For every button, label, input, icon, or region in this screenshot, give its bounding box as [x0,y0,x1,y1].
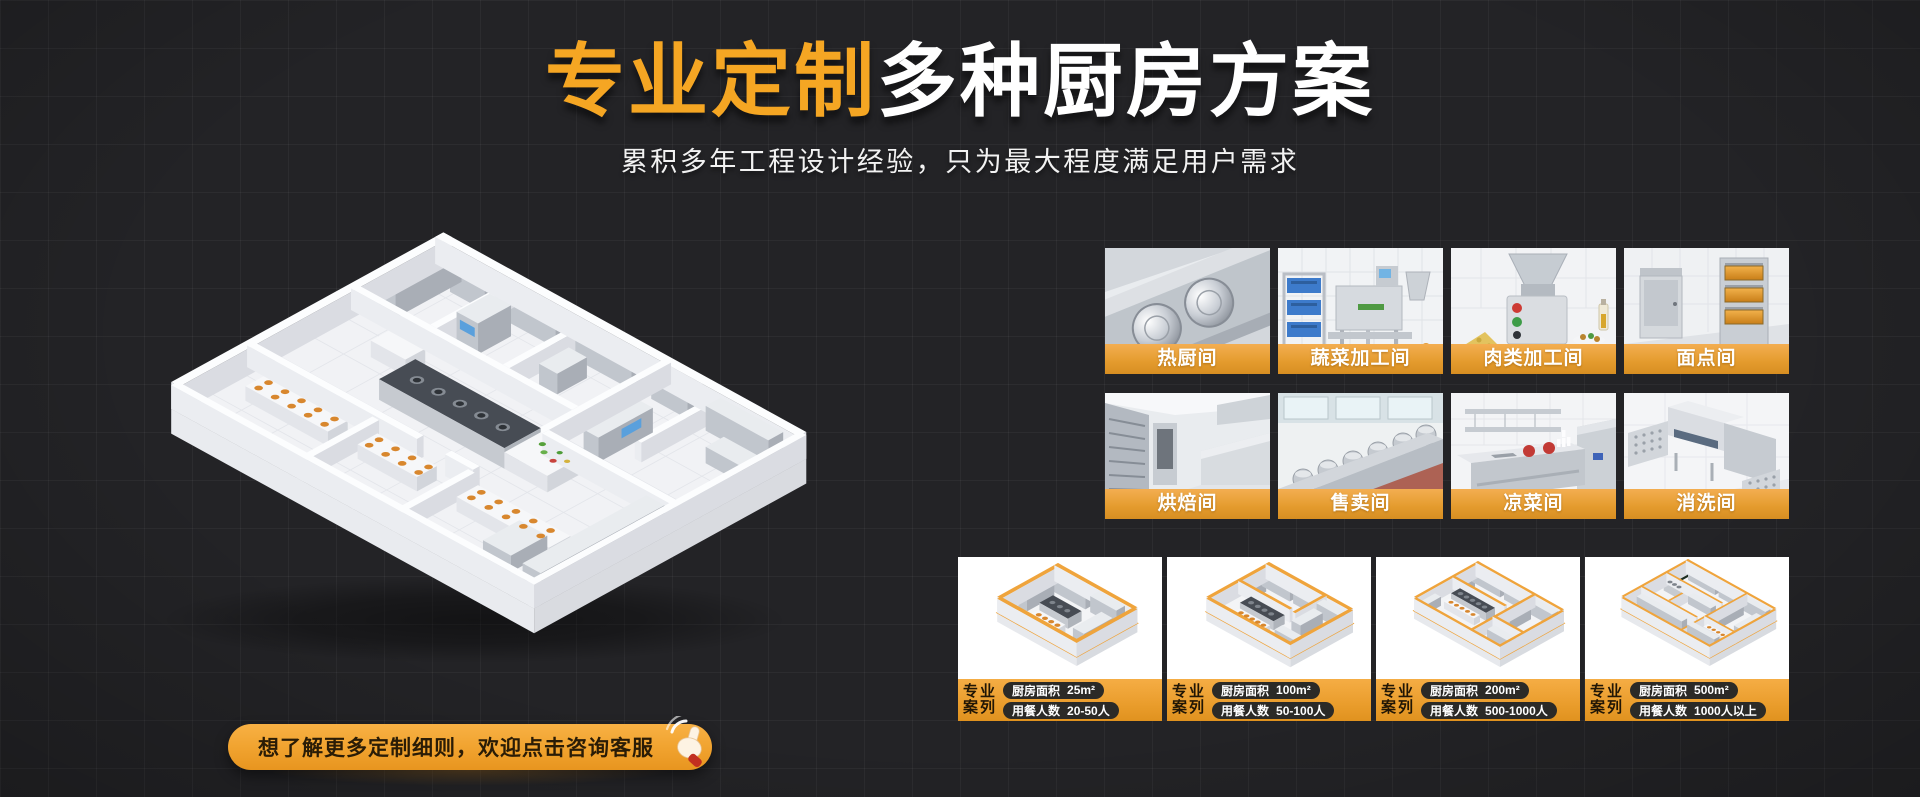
kitchen-solutions-banner: 专业定制多种厨房方案 累积多年工程设计经验，只为最大程度满足用户需求 想了解更多… [0,0,1920,797]
case-tag: 专业案列 [1381,684,1415,717]
kitchen-area-pill: 厨房面积100m² [1212,682,1320,699]
room-tile-sales: 售卖间 [1278,393,1443,519]
room-tile-label: 面点间 [1624,344,1789,374]
room-tile-label: 热厨间 [1105,344,1270,374]
hero-header: 专业定制多种厨房方案 累积多年工程设计经验，只为最大程度满足用户需求 [0,40,1920,179]
room-tile-baking: 烘焙间 [1105,393,1270,519]
case-tag: 专业案列 [1590,684,1624,717]
diners-count-pill: 用餐人数20-50人 [1003,702,1119,719]
case-card-500m2: 专业案列 厨房面积500m² 用餐人数1000人以上 [1585,557,1789,721]
kitchen-area-pill: 厨房面积500m² [1630,682,1738,699]
diners-count-pill: 用餐人数1000人以上 [1630,702,1766,719]
case-kitchen-render-100m2 [1167,557,1371,679]
room-tile-label: 凉菜间 [1451,489,1616,519]
case-kitchen-render-25m2 [958,557,1162,679]
room-tile-pastry: 面点间 [1624,248,1789,374]
case-badge: 专业案列 厨房面积100m² 用餐人数50-100人 [1167,679,1371,721]
case-badge: 专业案列 厨房面积500m² 用餐人数1000人以上 [1585,679,1789,721]
room-tile-label: 售卖间 [1278,489,1443,519]
room-tile-label: 蔬菜加工间 [1278,344,1443,374]
case-card-25m2: 专业案列 厨房面积25m² 用餐人数20-50人 [958,557,1162,721]
case-kitchen-render-500m2 [1585,557,1789,679]
kitchen-area-pill: 厨房面积200m² [1421,682,1529,699]
hand-click-icon [662,716,718,772]
room-tile-vegetable-processing: 蔬菜加工间 [1278,248,1443,374]
diners-count-pill: 用餐人数500-1000人 [1421,702,1557,719]
case-kitchen-render-200m2 [1376,557,1580,679]
case-tag: 专业案列 [963,684,997,717]
room-tile-label: 肉类加工间 [1451,344,1616,374]
room-tile-dishwashing: 消洗间 [1624,393,1789,519]
case-badge: 专业案列 厨房面积25m² 用餐人数20-50人 [958,679,1162,721]
room-tile-label: 烘焙间 [1105,489,1270,519]
consult-service-button[interactable]: 想了解更多定制细则，欢迎点击咨询客服 [228,724,712,770]
kitchen-area-pill: 厨房面积25m² [1003,682,1104,699]
kitchen-floorplan-3d [98,206,830,668]
case-card-row: 专业案列 厨房面积25m² 用餐人数20-50人 专业案列 厨房面积100m² … [958,557,1789,721]
diners-count-pill: 用餐人数50-100人 [1212,702,1334,719]
room-tile-grid: 热厨间 蔬菜加工间 [1105,248,1789,519]
room-tile-label: 消洗间 [1624,489,1789,519]
kitchen-floorplan-3d-art [98,206,830,668]
case-card-100m2: 专业案列 厨房面积100m² 用餐人数50-100人 [1167,557,1371,721]
room-tile-meat-processing: 肉类加工间 [1451,248,1616,374]
page-title: 专业定制多种厨房方案 [0,40,1920,124]
title-highlight: 专业定制 [545,37,877,126]
room-tile-hot-kitchen: 热厨间 [1105,248,1270,374]
case-tag: 专业案列 [1172,684,1206,717]
room-tile-cold-dish: 凉菜间 [1451,393,1616,519]
page-subtitle: 累积多年工程设计经验，只为最大程度满足用户需求 [0,140,1920,179]
case-badge: 专业案列 厨房面积200m² 用餐人数500-1000人 [1376,679,1580,721]
consult-service-label: 想了解更多定制细则，欢迎点击咨询客服 [258,732,654,762]
case-card-200m2: 专业案列 厨房面积200m² 用餐人数500-1000人 [1376,557,1580,721]
title-rest: 多种厨房方案 [877,37,1375,126]
